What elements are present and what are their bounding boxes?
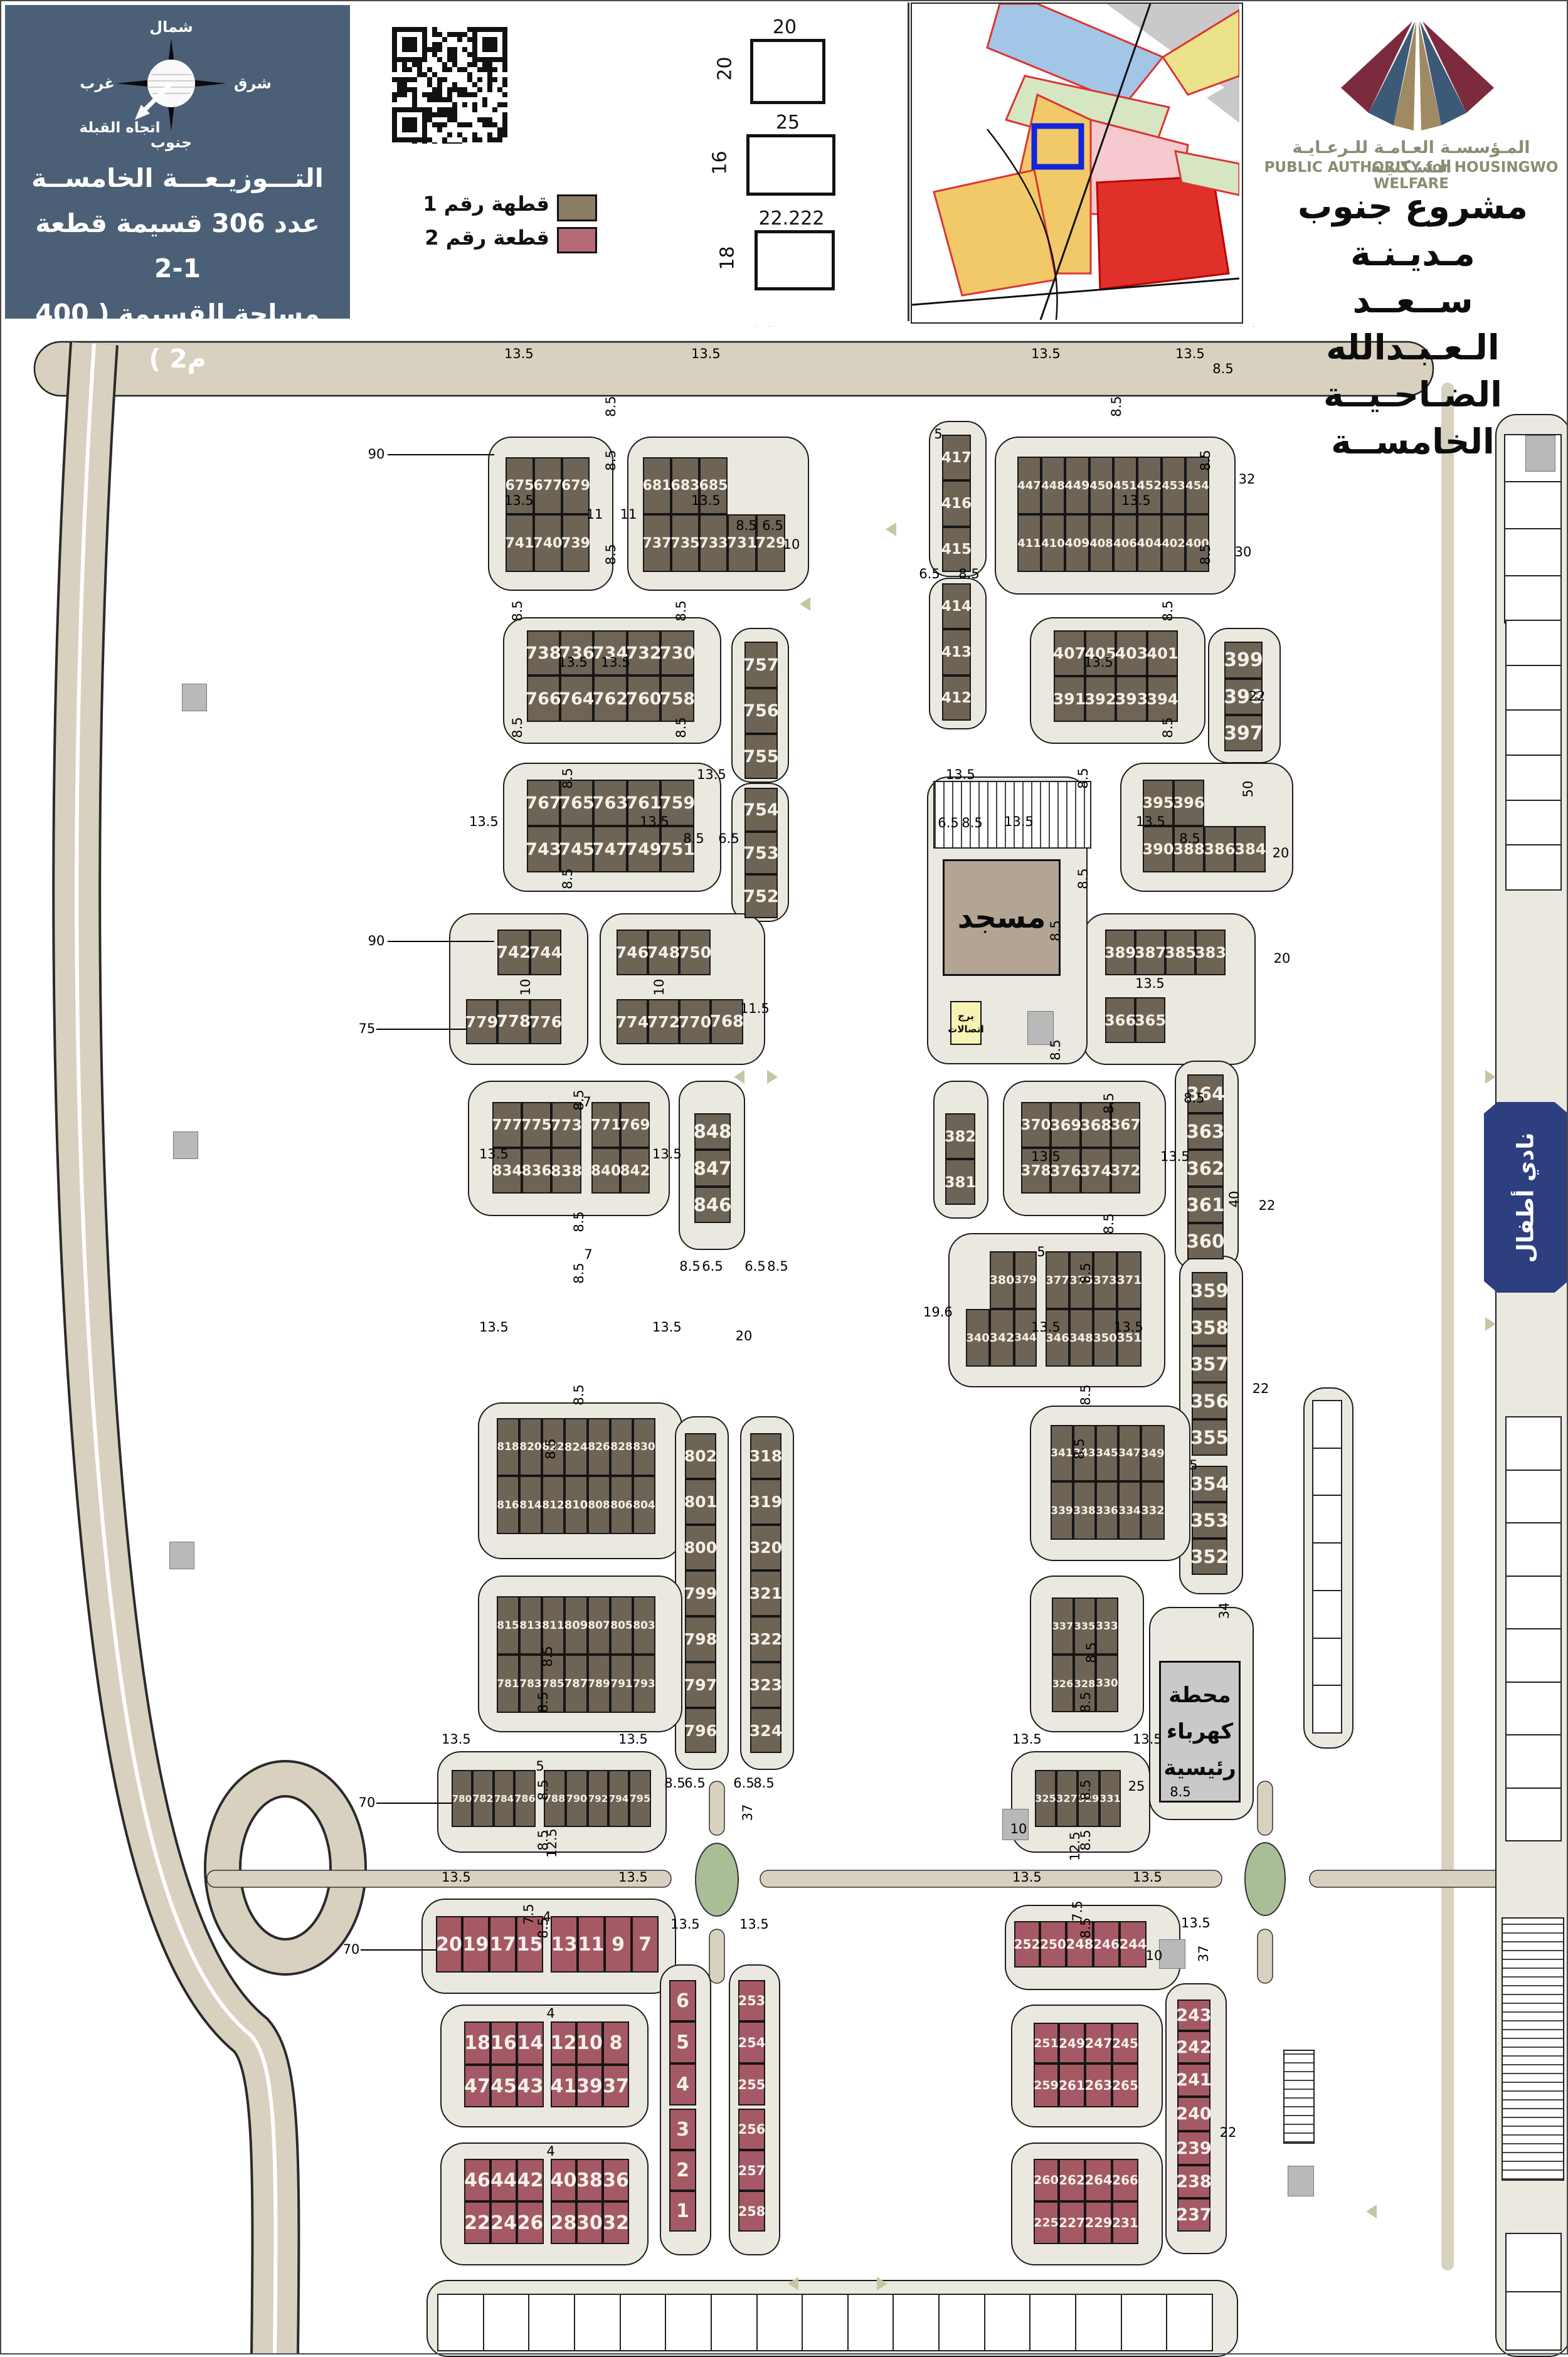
plot-46: 46 bbox=[464, 2159, 490, 2201]
diagram3-height-label: 18 bbox=[717, 246, 739, 271]
plot-17: 17 bbox=[489, 1916, 516, 1973]
plot-449: 449 bbox=[1065, 457, 1089, 514]
plot-340: 340 bbox=[966, 1309, 990, 1367]
plot-338: 338 bbox=[1073, 1481, 1096, 1540]
plot-450: 450 bbox=[1089, 457, 1113, 514]
road-arrow-icon bbox=[877, 2277, 887, 2291]
dimension-label: 13.5 bbox=[618, 1732, 646, 1747]
dimension-label: 37 bbox=[1196, 1940, 1211, 1968]
plot-253: 253 bbox=[738, 1980, 765, 2021]
plot-769: 769 bbox=[620, 1102, 650, 1148]
plot-37: 37 bbox=[603, 2065, 629, 2107]
plot-770: 770 bbox=[679, 999, 711, 1044]
plot-344: 344 bbox=[1014, 1309, 1037, 1367]
plot-754: 754 bbox=[744, 788, 778, 832]
project-title-line3: الضـاحـيــة الخامســة bbox=[1267, 371, 1559, 465]
dimension-label: 8.5 bbox=[764, 1259, 792, 1274]
plot-786: 786 bbox=[514, 1770, 536, 1827]
plot-358: 358 bbox=[1192, 1309, 1227, 1346]
dimension-label: 5 bbox=[526, 1759, 554, 1774]
dimension-label: 22 bbox=[1214, 2125, 1242, 2140]
dimension-label: 13.5 bbox=[946, 767, 973, 782]
plot-47: 47 bbox=[464, 2065, 490, 2107]
plot-753: 753 bbox=[744, 832, 778, 874]
plot-387: 387 bbox=[1135, 930, 1165, 975]
plot-752: 752 bbox=[744, 874, 778, 918]
garage-cell bbox=[1504, 528, 1562, 576]
roundabout-west bbox=[696, 1843, 738, 1916]
dimension-label: 20 bbox=[1267, 845, 1295, 861]
plot-816: 816 bbox=[497, 1476, 519, 1534]
plot-30: 30 bbox=[576, 2201, 603, 2244]
utility-box bbox=[1288, 2166, 1314, 2196]
plot-448: 448 bbox=[1041, 457, 1065, 514]
garage-cell bbox=[483, 2294, 530, 2351]
main-road-median-west bbox=[207, 1870, 671, 1887]
plot-382: 382 bbox=[945, 1113, 975, 1159]
plot-229: 229 bbox=[1085, 2201, 1112, 2244]
plot-255: 255 bbox=[738, 2063, 765, 2105]
plot-406: 406 bbox=[1113, 514, 1137, 572]
dimension-label: 11 bbox=[581, 507, 608, 522]
plot-325: 325 bbox=[1035, 1770, 1056, 1827]
dimension-leader-line bbox=[388, 941, 494, 942]
plot-257: 257 bbox=[738, 2150, 765, 2191]
plot-410: 410 bbox=[1041, 514, 1065, 572]
plot-374: 374 bbox=[1081, 1148, 1111, 1194]
plot-802: 802 bbox=[685, 1433, 716, 1479]
plot-330: 330 bbox=[1096, 1655, 1118, 1712]
plot-801: 801 bbox=[685, 1479, 716, 1525]
plot-787: 787 bbox=[564, 1655, 588, 1713]
plot-337: 337 bbox=[1052, 1597, 1074, 1655]
plot-396: 396 bbox=[1173, 780, 1204, 826]
dimension-label: 7 bbox=[573, 1094, 601, 1110]
garage-cell bbox=[1504, 575, 1562, 623]
plot-738: 738 bbox=[527, 630, 560, 675]
dimension-label: 8.5 bbox=[958, 815, 986, 830]
dimension-label: 13.5 bbox=[504, 346, 532, 361]
plot-347: 347 bbox=[1118, 1425, 1141, 1481]
plot-44: 44 bbox=[490, 2159, 517, 2201]
plot-383: 383 bbox=[1195, 930, 1226, 975]
dimension-label: 13.5 bbox=[1004, 814, 1032, 829]
dimension-label: 8.5 bbox=[510, 597, 525, 625]
plot-797: 797 bbox=[685, 1662, 716, 1708]
compass-east-label: شرق bbox=[234, 75, 272, 92]
garage-cell bbox=[528, 2294, 575, 2351]
dimension-label: 8.5 bbox=[510, 714, 525, 741]
plot-412: 412 bbox=[942, 675, 971, 721]
plot-346: 346 bbox=[1046, 1309, 1069, 1367]
plot-355: 355 bbox=[1192, 1419, 1227, 1456]
dimension-label: 13.5 bbox=[1135, 976, 1163, 991]
dimension-label: 6.5 bbox=[916, 566, 943, 581]
plot-741: 741 bbox=[506, 514, 534, 572]
compass-south-label: جنوب bbox=[151, 134, 192, 151]
plot-350: 350 bbox=[1093, 1309, 1117, 1367]
plot-352: 352 bbox=[1192, 1539, 1227, 1575]
dimension-label: 90 bbox=[363, 447, 390, 462]
plot-16: 16 bbox=[490, 2021, 517, 2065]
garage-cell bbox=[1121, 2294, 1168, 2351]
dimension-label: 13.5 bbox=[739, 1917, 767, 1932]
plot-259: 259 bbox=[1034, 2063, 1059, 2107]
plot-1: 1 bbox=[669, 2191, 696, 2232]
garage-cell bbox=[1505, 2233, 1562, 2292]
garage-cell bbox=[1505, 1734, 1562, 1789]
plot-763: 763 bbox=[593, 780, 627, 826]
dimension-label: 22 bbox=[1247, 1381, 1274, 1396]
plot-732: 732 bbox=[627, 630, 660, 675]
plot-760: 760 bbox=[627, 675, 660, 722]
plot-18: 18 bbox=[464, 2021, 490, 2065]
plot-258: 258 bbox=[738, 2191, 765, 2232]
garage-cell bbox=[938, 2294, 985, 2351]
plot-245: 245 bbox=[1112, 2023, 1138, 2063]
plan-title-line1: التـــوزيـعـــة الخامســة bbox=[18, 156, 337, 201]
plot-796: 796 bbox=[685, 1708, 716, 1753]
dimension-label: 4 bbox=[537, 2144, 564, 2159]
plot-43: 43 bbox=[517, 2065, 544, 2107]
garage-cell bbox=[1505, 844, 1562, 891]
parking-lot bbox=[1283, 2050, 1315, 2144]
plot-740: 740 bbox=[534, 514, 562, 572]
plot-780: 780 bbox=[452, 1770, 472, 1827]
dimension-label: 13.5 bbox=[691, 493, 719, 508]
plot-363: 363 bbox=[1187, 1113, 1224, 1150]
dimension-label: 13.5 bbox=[652, 1320, 680, 1335]
dimension-label: 8.5 bbox=[560, 865, 575, 892]
garage-cell bbox=[1029, 2294, 1076, 2351]
plot-diagram-20x20 bbox=[750, 39, 825, 104]
plot-776: 776 bbox=[530, 999, 561, 1044]
plot-357: 357 bbox=[1192, 1346, 1227, 1382]
plot-730: 730 bbox=[660, 630, 694, 675]
dimension-label: 10 bbox=[778, 537, 805, 552]
dimension-label: 8.5 bbox=[571, 1381, 586, 1409]
plot-812: 812 bbox=[542, 1476, 564, 1534]
plot-755: 755 bbox=[744, 734, 778, 779]
diagram1-height-label: 20 bbox=[714, 56, 736, 82]
utility-box bbox=[173, 1131, 198, 1159]
dimension-label: 8.5 bbox=[1160, 714, 1175, 741]
plot-747: 747 bbox=[593, 826, 627, 872]
project-title: مشروع جنوب مـديـنـة ســعــد الـعـبـدالله… bbox=[1267, 183, 1559, 465]
plot-847: 847 bbox=[694, 1150, 731, 1187]
plot-828: 828 bbox=[610, 1418, 633, 1476]
garage-cell bbox=[1505, 1788, 1562, 1842]
dimension-label: 13.5 bbox=[1181, 1915, 1209, 1931]
plot-323: 323 bbox=[750, 1662, 781, 1708]
garage-cell bbox=[1505, 755, 1562, 801]
dimension-label: 8.5 bbox=[750, 1776, 778, 1791]
plot-826: 826 bbox=[588, 1418, 610, 1476]
dimension-label: 13.5 bbox=[670, 1917, 698, 1932]
plot-846: 846 bbox=[694, 1187, 731, 1223]
dimension-label: 13.5 bbox=[1175, 346, 1203, 361]
dimension-label: 8.5 bbox=[603, 447, 618, 474]
plot-361: 361 bbox=[1187, 1187, 1224, 1223]
plot-748: 748 bbox=[648, 930, 679, 975]
roundabout-east bbox=[1245, 1843, 1285, 1915]
dimension-label: 8.5 bbox=[536, 1776, 551, 1804]
plot-389: 389 bbox=[1105, 930, 1135, 975]
dimension-label: 8.5 bbox=[1209, 361, 1237, 376]
garage-cell bbox=[1312, 1400, 1342, 1449]
plot-778: 778 bbox=[497, 999, 530, 1044]
dimension-label: 8.5 bbox=[540, 1643, 555, 1670]
plot-20: 20 bbox=[436, 1916, 462, 1973]
plot-24: 24 bbox=[490, 2201, 517, 2244]
dimension-label: 8.5 bbox=[1180, 1091, 1208, 1106]
legend-swatch-piece1 bbox=[557, 194, 597, 221]
dimension-label: 8.5 bbox=[1167, 1784, 1194, 1799]
road-arrow-icon bbox=[800, 597, 810, 611]
location-inset-map bbox=[911, 3, 1243, 324]
dimension-label: 22 bbox=[1243, 689, 1271, 704]
authority-logo bbox=[1336, 18, 1499, 134]
plot-365: 365 bbox=[1135, 997, 1165, 1043]
dimension-label: 13.5 bbox=[652, 1147, 680, 1162]
plot-397: 397 bbox=[1224, 715, 1263, 751]
plot-792: 792 bbox=[588, 1770, 608, 1827]
plot-359: 359 bbox=[1192, 1272, 1227, 1309]
garage-cell bbox=[1505, 1470, 1562, 1524]
plot-36: 36 bbox=[603, 2159, 629, 2201]
plot-818: 818 bbox=[497, 1418, 519, 1476]
dimension-label: 13.5 bbox=[1012, 1732, 1040, 1747]
qibla-label: اتجاه القبلة bbox=[79, 120, 160, 136]
diagram2-height-label: 16 bbox=[709, 151, 731, 176]
dimension-label: 8.5 bbox=[1078, 1381, 1093, 1409]
dimension-label: 8.5 bbox=[560, 765, 575, 792]
plot-321: 321 bbox=[750, 1570, 781, 1616]
utility-box bbox=[182, 684, 207, 711]
parking-lot bbox=[1502, 1917, 1564, 2181]
dimension-label: 11 bbox=[615, 507, 642, 522]
plot-777: 777 bbox=[492, 1102, 522, 1148]
plot-762: 762 bbox=[593, 675, 627, 722]
plot-251: 251 bbox=[1034, 2023, 1059, 2063]
diagram2-width-label: 25 bbox=[746, 112, 829, 134]
plot-407: 407 bbox=[1054, 630, 1085, 676]
plot-264: 264 bbox=[1085, 2159, 1112, 2201]
plot-775: 775 bbox=[522, 1102, 551, 1148]
dimension-label: 8.5 bbox=[1076, 865, 1091, 892]
plot-381: 381 bbox=[945, 1159, 975, 1205]
plot-40: 40 bbox=[551, 2159, 576, 2201]
dimension-label: 5 bbox=[1027, 1244, 1055, 1259]
dimension-label: 13.5 bbox=[1114, 1320, 1142, 1335]
plot-348: 348 bbox=[1069, 1309, 1093, 1367]
plot-371: 371 bbox=[1117, 1251, 1142, 1309]
plot-774: 774 bbox=[617, 999, 648, 1044]
dimension-label: 10 bbox=[518, 973, 533, 1001]
plot-254: 254 bbox=[738, 2021, 765, 2063]
dimension-label: 6.5 bbox=[759, 518, 787, 533]
plot-19: 19 bbox=[462, 1916, 489, 1973]
plot-45: 45 bbox=[490, 2065, 517, 2107]
plot-7: 7 bbox=[632, 1916, 659, 1973]
header-divider bbox=[908, 3, 909, 321]
plot-13: 13 bbox=[551, 1916, 578, 1973]
garage-cell bbox=[1505, 620, 1562, 666]
plot-256: 256 bbox=[738, 2109, 765, 2150]
plot-242: 242 bbox=[1177, 2031, 1210, 2063]
plot-743: 743 bbox=[527, 826, 560, 872]
road-arrow-icon bbox=[1366, 2205, 1377, 2218]
dimension-label: 5 bbox=[1180, 1458, 1207, 1473]
dimension-label: 13.5 bbox=[479, 1147, 507, 1162]
dimension-label: 8.5 bbox=[1078, 1688, 1093, 1716]
plot-360: 360 bbox=[1187, 1223, 1224, 1259]
title-panel: شمال جنوب شرق غرب اتجاه القبلة التـــوزي… bbox=[5, 5, 350, 319]
plot-320: 320 bbox=[750, 1525, 781, 1570]
garage-cell bbox=[1505, 800, 1562, 846]
plot-791: 791 bbox=[610, 1655, 633, 1713]
dimension-label: 8.5 bbox=[1078, 1259, 1093, 1287]
dimension-label: 13.5 bbox=[640, 814, 667, 829]
dimension-label: 8.5 bbox=[543, 1435, 558, 1463]
plot-10: 10 bbox=[576, 2021, 603, 2065]
garage-cell bbox=[847, 2294, 894, 2351]
garage-cell bbox=[1505, 709, 1562, 756]
plot-447: 447 bbox=[1017, 457, 1041, 514]
dimension-label: 8.5 bbox=[674, 714, 689, 741]
dimension-label: 8.5 bbox=[1048, 1036, 1063, 1064]
plot-793: 793 bbox=[633, 1655, 655, 1713]
garage-cell bbox=[756, 2294, 803, 2351]
legend-label-2: قطعة رقم 2 bbox=[401, 226, 549, 250]
diagram3-width-label: 22.222 bbox=[734, 208, 849, 230]
site-plan: مسجد برج اتصالات محطة كهرباء رئيسية نادي… bbox=[0, 326, 1568, 2354]
plot-411: 411 bbox=[1017, 514, 1041, 572]
dimension-label: 13.5 bbox=[479, 1320, 507, 1335]
garage-cell bbox=[620, 2294, 667, 2351]
plot-453: 453 bbox=[1162, 457, 1185, 514]
plot-757: 757 bbox=[744, 642, 778, 688]
plot-836: 836 bbox=[522, 1148, 551, 1194]
plot-390: 390 bbox=[1143, 826, 1173, 872]
plot-750: 750 bbox=[679, 930, 711, 975]
plot-795: 795 bbox=[629, 1770, 651, 1827]
plot-373: 373 bbox=[1093, 1251, 1117, 1309]
plot-782: 782 bbox=[472, 1770, 494, 1827]
plot-830: 830 bbox=[633, 1418, 655, 1476]
plot-800: 800 bbox=[685, 1525, 716, 1570]
plot-333: 333 bbox=[1096, 1597, 1118, 1655]
qr-code bbox=[392, 27, 517, 144]
plot-391: 391 bbox=[1054, 676, 1085, 722]
plot-779: 779 bbox=[466, 999, 497, 1044]
plot-798: 798 bbox=[685, 1616, 716, 1662]
dimension-label: 8.5 bbox=[1084, 1639, 1099, 1666]
plot-392: 392 bbox=[1085, 676, 1116, 722]
plot-794: 794 bbox=[608, 1770, 629, 1827]
plot-249: 249 bbox=[1059, 2023, 1085, 2063]
plot-813: 813 bbox=[519, 1596, 542, 1655]
plot-838: 838 bbox=[551, 1148, 581, 1194]
garage-cell bbox=[1312, 1495, 1342, 1544]
plot-241: 241 bbox=[1177, 2063, 1210, 2097]
dimension-label: 13.5 bbox=[1031, 1149, 1059, 1164]
plot-227: 227 bbox=[1059, 2201, 1085, 2244]
plot-6: 6 bbox=[669, 1980, 696, 2021]
garage-cell bbox=[802, 2294, 849, 2351]
dimension-label: 37 bbox=[740, 1799, 755, 1826]
plot-3: 3 bbox=[669, 2109, 696, 2150]
garage-cell bbox=[1505, 2291, 1562, 2351]
dimension-label: 8.5 bbox=[1109, 393, 1124, 420]
plot-809: 809 bbox=[564, 1596, 588, 1655]
plot-260: 260 bbox=[1034, 2159, 1059, 2201]
plot-739: 739 bbox=[562, 514, 590, 572]
dimension-label: 25 bbox=[1123, 1779, 1150, 1794]
plot-404: 404 bbox=[1137, 514, 1162, 572]
dimension-label: 13.5 bbox=[1031, 1320, 1059, 1335]
east-road-median bbox=[1441, 383, 1454, 2270]
plot-413: 413 bbox=[942, 629, 971, 675]
plot-4: 4 bbox=[669, 2063, 696, 2105]
dimension-label: 8.5 bbox=[571, 1259, 586, 1287]
plot-804: 804 bbox=[633, 1476, 655, 1534]
plot-237: 237 bbox=[1177, 2198, 1210, 2232]
dimension-label: 50 bbox=[1241, 775, 1256, 803]
garage-cell bbox=[893, 2294, 940, 2351]
plot-324: 324 bbox=[750, 1708, 781, 1753]
plot-247: 247 bbox=[1085, 2023, 1112, 2063]
legend-swatch-piece2 bbox=[557, 227, 597, 253]
plot-238: 238 bbox=[1177, 2165, 1210, 2198]
plot-341: 341 bbox=[1051, 1425, 1073, 1481]
plot-261: 261 bbox=[1059, 2063, 1085, 2107]
plot-262: 262 bbox=[1059, 2159, 1085, 2201]
road-arrow-icon bbox=[734, 1070, 744, 1084]
dimension-label: 10 bbox=[1140, 1948, 1168, 1963]
dimension-label: 20 bbox=[1268, 951, 1296, 966]
plot-820: 820 bbox=[519, 1418, 542, 1476]
project-title-line1: مشروع جنوب مـديـنـة bbox=[1267, 183, 1559, 277]
plot-351: 351 bbox=[1117, 1309, 1142, 1367]
compass: شمال جنوب شرق غرب اتجاه القبلة bbox=[46, 14, 297, 152]
dimension-label: 13.5 bbox=[697, 767, 724, 782]
plot-848: 848 bbox=[694, 1113, 731, 1150]
plot-331: 331 bbox=[1099, 1770, 1121, 1827]
garage-cell bbox=[711, 2294, 758, 2351]
dimension-label: 8.5 bbox=[674, 597, 689, 625]
children-club-label: نادي أطفال bbox=[1513, 1132, 1539, 1263]
plot-808: 808 bbox=[588, 1476, 610, 1534]
plot-252: 252 bbox=[1014, 1921, 1040, 1968]
dimension-label: 8.5 bbox=[1048, 917, 1063, 945]
road-network bbox=[0, 326, 1568, 2354]
plot-372: 372 bbox=[1111, 1148, 1140, 1194]
plot-369: 369 bbox=[1051, 1102, 1081, 1148]
garage-cell bbox=[1504, 481, 1562, 529]
utility-box bbox=[169, 1542, 194, 1569]
dimension-label: 13.5 bbox=[504, 493, 532, 508]
plot-339: 339 bbox=[1051, 1481, 1073, 1540]
plot-38: 38 bbox=[576, 2159, 603, 2201]
dimension-label: 70 bbox=[353, 1795, 381, 1810]
dimension-label: 8.5 bbox=[1101, 1210, 1116, 1237]
plot-353: 353 bbox=[1192, 1502, 1227, 1539]
plot-225: 225 bbox=[1034, 2201, 1059, 2244]
plot-32: 32 bbox=[603, 2201, 629, 2244]
dimension-label: 10 bbox=[1005, 1821, 1032, 1836]
garage-cell bbox=[574, 2294, 621, 2351]
